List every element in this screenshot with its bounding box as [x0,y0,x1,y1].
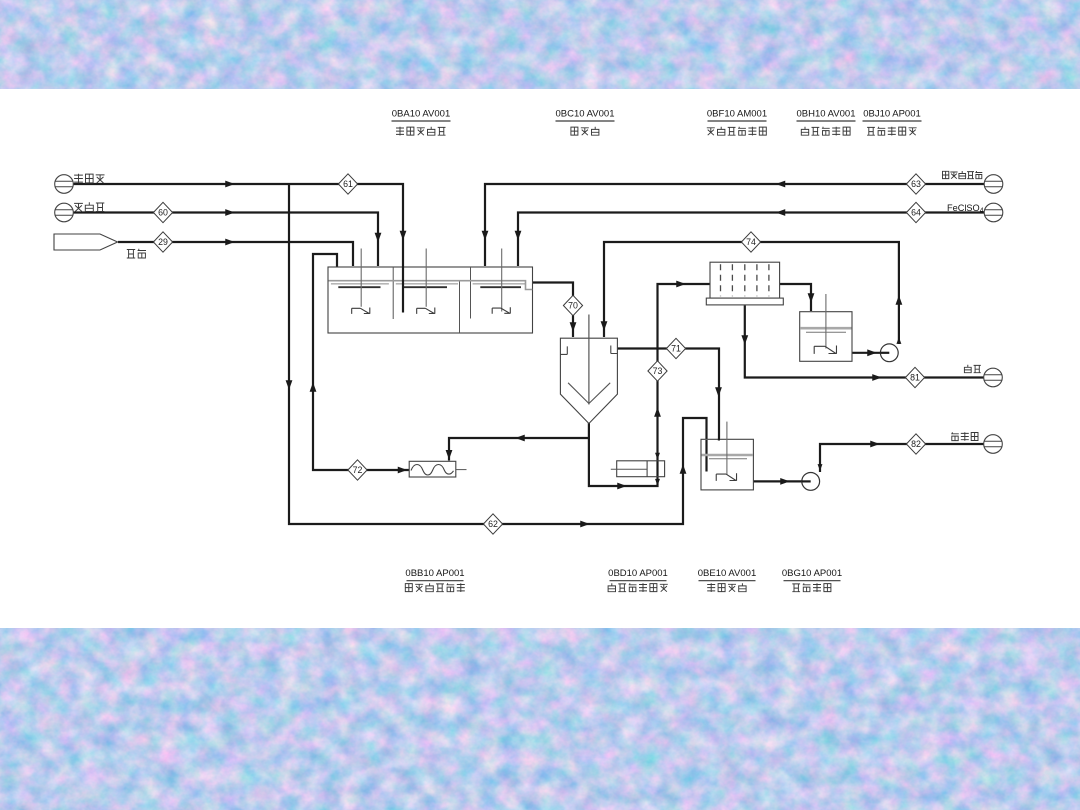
svg-text:0BJ10 AP001: 0BJ10 AP001 [863,109,921,120]
svg-text:0BD10 AP001: 0BD10 AP001 [608,568,668,579]
svg-text:0BF10 AM001: 0BF10 AM001 [707,109,767,120]
svg-text:FeClSO4: FeClSO4 [947,203,984,215]
svg-text:82: 82 [911,439,921,449]
svg-text:60: 60 [158,208,168,218]
svg-text:0BB10 AP001: 0BB10 AP001 [405,568,464,579]
svg-text:62: 62 [488,519,498,529]
svg-text:70: 70 [568,301,578,311]
svg-text:81: 81 [910,373,920,383]
svg-text:0BE10 AV001: 0BE10 AV001 [698,568,756,579]
svg-text:29: 29 [158,237,168,247]
svg-text:0BC10 AV001: 0BC10 AV001 [556,109,615,120]
svg-text:63: 63 [911,179,921,189]
svg-text:0BA10 AV001: 0BA10 AV001 [392,109,450,120]
svg-text:0BG10 AP001: 0BG10 AP001 [782,568,842,579]
svg-text:72: 72 [353,465,363,475]
svg-text:74: 74 [746,237,756,247]
svg-text:61: 61 [343,179,353,189]
svg-text:71: 71 [671,344,681,354]
svg-text:73: 73 [653,366,663,376]
svg-text:64: 64 [911,208,921,218]
svg-text:0BH10 AV001: 0BH10 AV001 [797,109,856,120]
